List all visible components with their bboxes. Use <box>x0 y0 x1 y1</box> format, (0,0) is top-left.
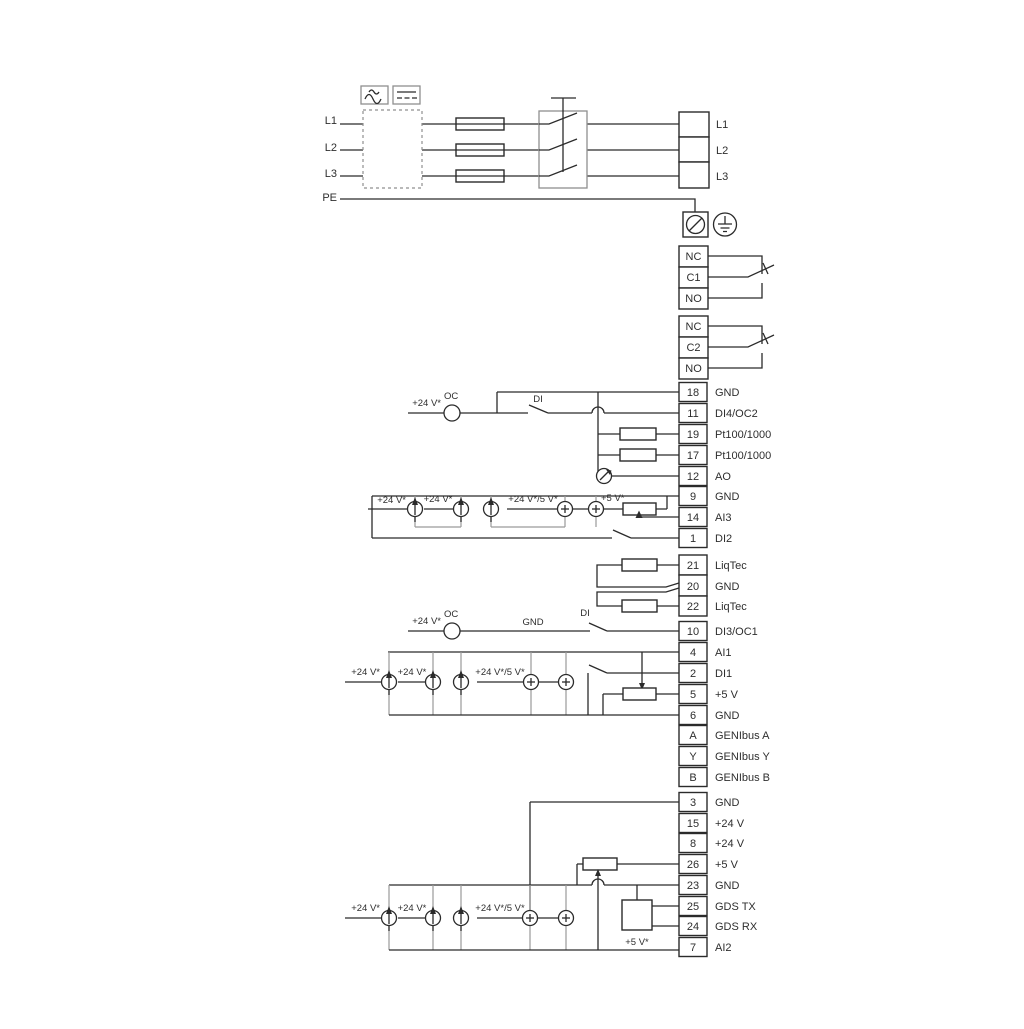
relay1-section: NC C1 NO <box>679 246 774 309</box>
liqtec-sensor-loop <box>597 559 679 612</box>
oc-label: OC <box>444 609 458 620</box>
pe-screw-terminal-icon <box>683 212 708 237</box>
svg-text:26: 26 <box>687 859 699 871</box>
terminal-row: 25GDS TX <box>679 897 756 916</box>
analog-output-meter-icon <box>597 469 680 484</box>
v24-label: +24 V* <box>377 495 406 506</box>
svg-text:GDS RX: GDS RX <box>715 921 758 933</box>
svg-text:12: 12 <box>687 471 699 483</box>
svg-text:AI3: AI3 <box>715 512 732 524</box>
current-source-icon <box>454 497 469 522</box>
svg-text:+5 V: +5 V <box>715 689 739 701</box>
option-brackets <box>389 652 566 715</box>
svg-text:17: 17 <box>687 450 699 462</box>
di-label: DI <box>580 608 590 619</box>
terminal-row: YGENIbus Y <box>679 747 770 766</box>
terminal-row: 15+24 V <box>679 814 745 833</box>
terminal-group-b: 10DI3/OC1 4AI1 2DI1 5+5 V 6GND AGENIbus … <box>679 622 770 787</box>
rcd-box <box>363 110 422 188</box>
voltage-source-icon <box>524 675 539 690</box>
current-source-icon <box>426 906 441 931</box>
svg-text:5: 5 <box>690 689 696 701</box>
svg-text:24: 24 <box>687 921 699 933</box>
terminal-row: 11DI4/OC2 <box>679 404 758 423</box>
svg-text:21: 21 <box>687 560 699 572</box>
svg-text:8: 8 <box>690 838 696 850</box>
svg-text:GND: GND <box>715 581 740 593</box>
dc-icon <box>393 86 420 104</box>
fuse-l1 <box>456 118 504 130</box>
current-source-icon <box>382 906 397 931</box>
v24-5v-label: +24 V*/5 V* <box>508 494 558 505</box>
voltage-source-icon <box>559 911 574 926</box>
v24-label: +24 V* <box>398 667 427 678</box>
svg-text:Pt100/1000: Pt100/1000 <box>715 429 771 441</box>
current-source-icon <box>408 497 423 522</box>
current-source-icon <box>426 670 441 695</box>
svg-text:20: 20 <box>687 581 699 593</box>
terminal-row: AGENIbus A <box>679 726 770 745</box>
v24-label: +24 V* <box>412 398 441 409</box>
relay1-nc: NC <box>686 251 702 263</box>
relay2-nc: NC <box>686 321 702 333</box>
svg-text:9: 9 <box>690 491 696 503</box>
terminal-row: 3GND <box>679 793 740 812</box>
ai1-potentiometer <box>603 652 679 715</box>
terminal-row: 12AO <box>679 467 731 486</box>
terminal-row: 22LiqTec <box>679 596 747 616</box>
svg-text:DI1: DI1 <box>715 668 732 680</box>
terminal-row: BGENIbus B <box>679 768 770 787</box>
svg-text:10: 10 <box>687 626 699 638</box>
terminal-row: 23GND <box>679 876 740 895</box>
gnd3-wire <box>530 802 679 911</box>
svg-text:14: 14 <box>687 512 699 524</box>
open-collector-icon <box>444 623 460 639</box>
pe-wire <box>340 199 695 212</box>
svg-text:GENIbus Y: GENIbus Y <box>715 751 770 763</box>
current-source-icon <box>382 670 397 695</box>
group-a-wiring: +24 V* OC DI <box>408 391 679 484</box>
svg-text:DI3/OC1: DI3/OC1 <box>715 626 758 638</box>
svg-text:GND: GND <box>715 880 740 892</box>
wiring-diagram: L1 L2 L3 PE L1 L2 <box>0 0 1024 1024</box>
mains-input-pe: PE <box>322 192 337 204</box>
v5-label: +5 V* <box>601 493 625 504</box>
svg-text:19: 19 <box>687 429 699 441</box>
mains-output-l1: L1 <box>716 119 728 131</box>
svg-text:22: 22 <box>687 601 699 613</box>
gnd18-wire <box>497 392 679 413</box>
terminal-row: 24GDS RX <box>679 917 758 936</box>
terminal-row: 2DI1 <box>679 664 732 683</box>
svg-text:GND: GND <box>715 797 740 809</box>
gnd-label: GND <box>522 617 543 628</box>
voltage-source-icon <box>523 911 538 926</box>
ai2-option-circuits: +24 V* +24 V* +24 V*/5 V* +5 V* <box>345 802 679 950</box>
relay2-contact <box>708 326 774 368</box>
svg-text:11: 11 <box>687 408 698 420</box>
svg-text:GND: GND <box>715 387 740 399</box>
svg-text:Y: Y <box>689 751 697 763</box>
relay2-c2: C2 <box>686 342 700 354</box>
svg-text:6: 6 <box>690 710 696 722</box>
relay2-section: NC C2 NO <box>679 316 774 379</box>
terminal-row: 21LiqTec <box>679 555 747 575</box>
relay1-no: NO <box>685 293 702 305</box>
liqtec-group: 21LiqTec 20GND 22LiqTec <box>597 555 747 616</box>
svg-text:DI4/OC2: DI4/OC2 <box>715 408 758 420</box>
relay1-contact <box>708 256 774 298</box>
mains-input-l3: L3 <box>325 168 337 180</box>
svg-text:23: 23 <box>687 880 699 892</box>
terminal-row: 7AI2 <box>679 938 732 957</box>
terminal-row: 18GND <box>679 383 740 402</box>
svg-text:LiqTec: LiqTec <box>715 560 747 572</box>
terminal-row: 10DI3/OC1 <box>679 622 758 641</box>
terminal-row: 19Pt100/1000 <box>679 425 771 444</box>
voltage-source-icon <box>558 502 573 517</box>
svg-text:3: 3 <box>690 797 696 809</box>
v24-label: +24 V* <box>398 903 427 914</box>
svg-text:4: 4 <box>690 647 696 659</box>
terminal-row: 4AI1 <box>679 643 732 662</box>
svg-text:+24 V: +24 V <box>715 818 745 830</box>
svg-text:25: 25 <box>687 901 699 913</box>
v24-label: +24 V* <box>424 494 453 505</box>
pt100-resistor <box>598 428 679 440</box>
di-label: DI <box>533 394 543 405</box>
svg-text:18: 18 <box>687 387 699 399</box>
v24-5v-label: +24 V*/5 V* <box>475 667 525 678</box>
terminal-row: 20GND <box>679 575 740 596</box>
voltage-source-icon <box>559 675 574 690</box>
current-source-icon <box>454 670 469 695</box>
terminal-row: 26+5 V <box>679 855 739 874</box>
svg-text:AO: AO <box>715 471 731 483</box>
svg-text:1: 1 <box>690 533 696 545</box>
ai3-option-circuits: +24 V* +24 V* +24 V*/5 V* +5 V* <box>368 493 679 538</box>
voltage-source-icon <box>589 502 604 517</box>
fuse-l3 <box>456 170 504 182</box>
svg-text:DI2: DI2 <box>715 533 732 545</box>
terminal-row: 17Pt100/1000 <box>679 446 771 465</box>
svg-text:A: A <box>689 730 697 742</box>
current-source-icon <box>454 906 469 931</box>
svg-text:2: 2 <box>690 668 696 680</box>
earth-ground-icon <box>714 213 737 236</box>
svg-text:Pt100/1000: Pt100/1000 <box>715 450 771 462</box>
relay1-c1: C1 <box>686 272 700 284</box>
mains-input-l2: L2 <box>325 142 337 154</box>
fuse-l2 <box>456 144 504 156</box>
terminal-row: 9GND <box>679 487 740 506</box>
v24-label: +24 V* <box>351 903 380 914</box>
svg-text:GND: GND <box>715 491 740 503</box>
mains-output-block: L1 L2 L3 <box>679 112 728 188</box>
v24-label: +24 V* <box>412 616 441 627</box>
svg-text:LiqTec: LiqTec <box>715 601 747 613</box>
mains-output-l2: L2 <box>716 145 728 157</box>
svg-text:GND: GND <box>715 710 740 722</box>
svg-text:B: B <box>689 772 696 784</box>
gds-sensor-box: +5 V* <box>622 885 679 948</box>
terminal-row: 6GND <box>679 706 740 725</box>
terminal-row: 1DI2 <box>679 529 732 548</box>
svg-text:GDS TX: GDS TX <box>715 901 756 913</box>
terminal-row: 14AI3 <box>679 508 732 527</box>
mains-input-l1: L1 <box>325 115 337 127</box>
svg-text:7: 7 <box>690 942 696 954</box>
svg-text:AI1: AI1 <box>715 647 732 659</box>
current-source-icon <box>484 497 499 522</box>
open-collector-icon <box>444 405 460 421</box>
main-switch <box>539 98 587 188</box>
diagram-canvas: L1 L2 L3 PE L1 L2 <box>0 0 1024 1024</box>
oc-label: OC <box>444 391 458 402</box>
terminal-group-c: 3GND 15+24 V 8+24 V 26+5 V 23GND 25GDS T… <box>679 793 758 957</box>
svg-text:+5 V: +5 V <box>715 859 739 871</box>
svg-text:GENIbus A: GENIbus A <box>715 730 770 742</box>
mains-section: L1 L2 L3 PE L1 L2 <box>322 86 736 237</box>
ai1-option-circuits: +24 V* +24 V* +24 V*/5 V* <box>345 652 679 715</box>
v5-label: +5 V* <box>625 937 649 948</box>
mains-output-l3: L3 <box>716 171 728 183</box>
terminal-row: 8+24 V <box>679 834 745 853</box>
relay2-no: NO <box>685 363 702 375</box>
svg-text:15: 15 <box>687 818 699 830</box>
gnd23-wire <box>389 879 679 885</box>
ai3-potentiometer <box>623 496 679 518</box>
svg-text:GENIbus B: GENIbus B <box>715 772 770 784</box>
terminal-group-a: 18GND 11DI4/OC2 19Pt100/1000 17Pt100/100… <box>679 383 771 548</box>
v24-label: +24 V* <box>351 667 380 678</box>
v24-5v-label: +24 V*/5 V* <box>475 903 525 914</box>
svg-text:AI2: AI2 <box>715 942 732 954</box>
pt100-resistor <box>598 449 679 461</box>
svg-text:+24 V: +24 V <box>715 838 745 850</box>
terminal-row: 5+5 V <box>679 685 739 704</box>
